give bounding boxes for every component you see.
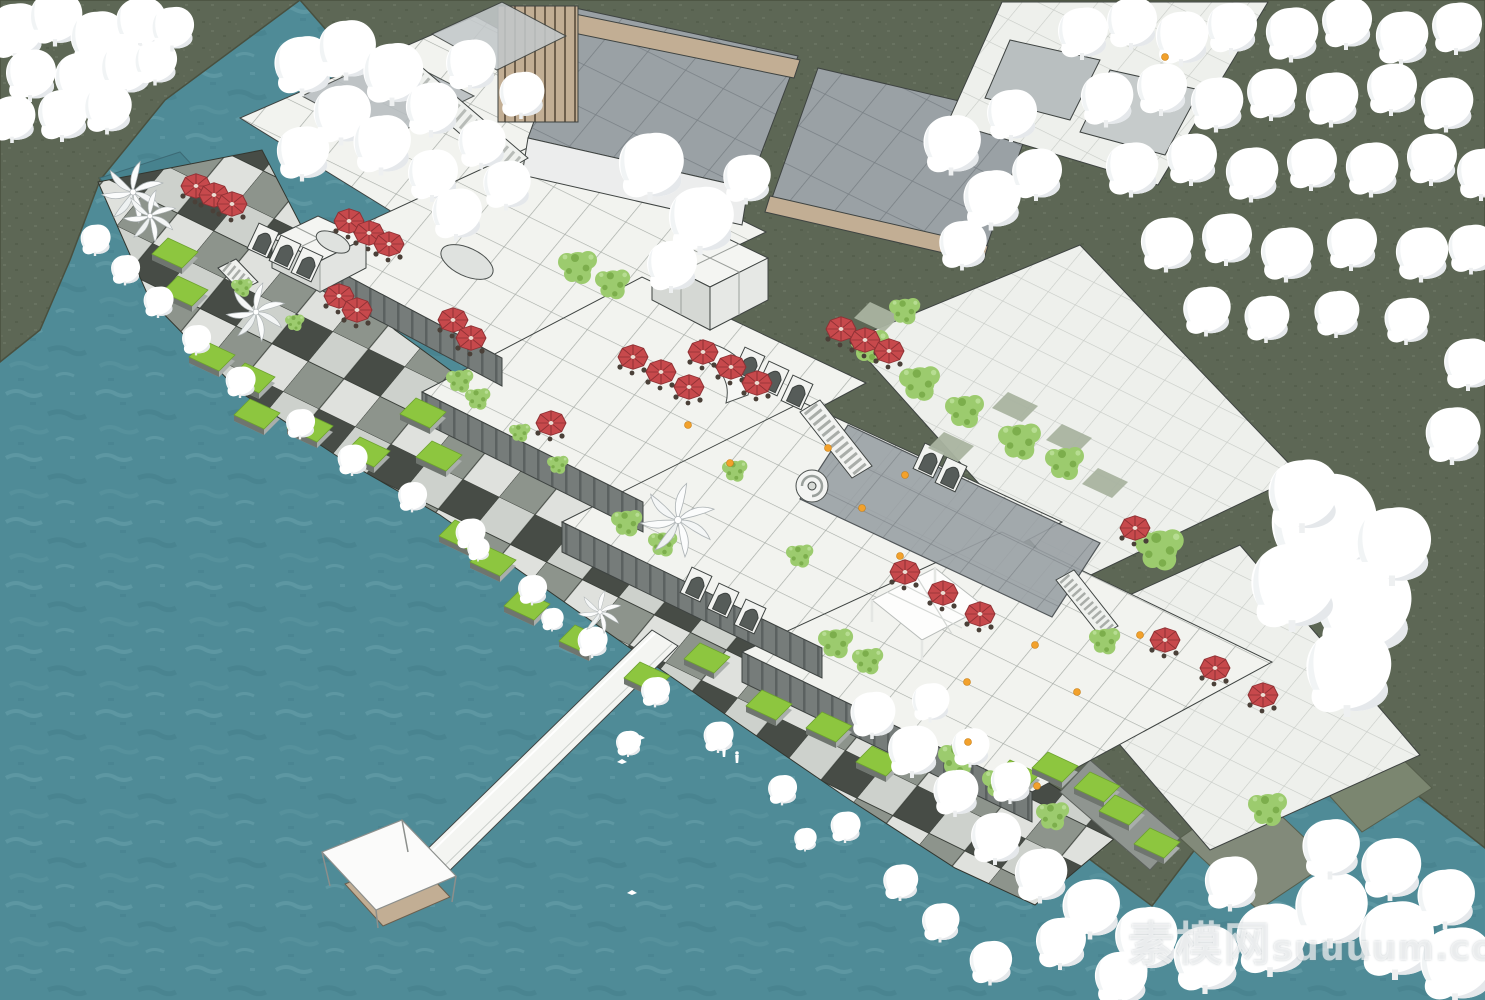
orange-lamp bbox=[902, 472, 909, 479]
white-model-tree bbox=[1058, 7, 1108, 60]
white-model-tree bbox=[794, 828, 816, 852]
white-model-tree bbox=[1183, 287, 1230, 337]
white-model-tree bbox=[111, 255, 140, 285]
white-model-tree bbox=[922, 903, 959, 942]
white-model-tree bbox=[144, 286, 174, 318]
white-model-tree bbox=[541, 608, 563, 632]
white-model-tree bbox=[226, 366, 256, 398]
rendering-canvas: 素模网suuuum.com bbox=[0, 0, 1485, 1000]
white-model-tree bbox=[1396, 227, 1448, 282]
white-model-tree bbox=[970, 941, 1012, 986]
orange-lamp bbox=[685, 422, 692, 429]
white-model-tree bbox=[1106, 142, 1158, 197]
white-model-tree bbox=[1141, 217, 1193, 272]
white-model-tree bbox=[616, 731, 641, 757]
white-model-tree bbox=[1306, 628, 1391, 717]
white-model-tree bbox=[1015, 848, 1067, 903]
orange-lamp bbox=[964, 679, 971, 686]
watermark-latin: suuuum.com bbox=[1272, 929, 1485, 969]
orange-lamp bbox=[825, 445, 832, 452]
white-model-tree bbox=[1376, 11, 1428, 66]
white-model-tree bbox=[883, 864, 918, 901]
white-model-tree bbox=[641, 677, 670, 707]
white-model-tree bbox=[1251, 543, 1336, 632]
white-model-tree bbox=[1202, 213, 1252, 266]
white-model-tree bbox=[1266, 7, 1318, 62]
orange-lamp bbox=[965, 739, 972, 746]
white-model-tree bbox=[1287, 138, 1337, 191]
white-model-tree bbox=[1247, 68, 1297, 121]
white-model-tree bbox=[1361, 838, 1421, 901]
white-model-tree bbox=[933, 770, 978, 817]
white-model-tree bbox=[446, 39, 496, 92]
white-model-tree bbox=[182, 325, 211, 355]
white-model-tree bbox=[1137, 63, 1187, 116]
white-model-tree bbox=[888, 725, 938, 778]
white-model-tree bbox=[483, 161, 530, 211]
spiral-stair bbox=[796, 470, 828, 502]
orange-lamp bbox=[1074, 689, 1081, 696]
white-model-tree bbox=[939, 221, 986, 271]
white-model-tree bbox=[1314, 291, 1359, 338]
white-model-tree bbox=[1207, 2, 1257, 55]
white-model-tree bbox=[923, 115, 980, 175]
orange-lamp bbox=[1137, 632, 1144, 639]
scene-svg bbox=[0, 0, 1485, 1000]
white-model-tree bbox=[723, 155, 770, 205]
orange-lamp bbox=[859, 505, 866, 512]
white-model-tree bbox=[1322, 0, 1372, 50]
white-model-tree bbox=[38, 89, 88, 142]
white-model-tree bbox=[1012, 148, 1062, 201]
watermark: 素模网suuuum.com bbox=[1128, 908, 1485, 974]
white-model-tree bbox=[432, 188, 482, 241]
white-model-tree bbox=[467, 538, 489, 562]
white-model-tree bbox=[353, 115, 410, 175]
white-model-tree bbox=[1261, 227, 1313, 282]
white-model-tree bbox=[458, 120, 505, 170]
white-model-tree bbox=[647, 240, 697, 293]
white-model-tree bbox=[398, 482, 427, 512]
white-model-tree bbox=[277, 126, 329, 181]
white-model-tree bbox=[1036, 917, 1086, 970]
white-model-tree bbox=[704, 721, 734, 753]
white-model-tree bbox=[912, 683, 949, 722]
white-model-tree bbox=[1167, 133, 1217, 186]
white-model-tree bbox=[619, 133, 684, 201]
white-model-tree bbox=[338, 444, 368, 476]
white-model-tree bbox=[1107, 0, 1157, 50]
person-figure bbox=[735, 751, 739, 763]
person-figure bbox=[722, 745, 726, 757]
white-model-tree bbox=[971, 812, 1021, 865]
orange-lamp bbox=[1032, 642, 1039, 649]
white-model-tree bbox=[1306, 72, 1358, 127]
white-model-tree bbox=[499, 72, 544, 119]
white-model-tree bbox=[768, 775, 797, 805]
white-model-tree bbox=[991, 762, 1031, 804]
white-model-tree bbox=[1205, 856, 1257, 911]
white-model-tree bbox=[1421, 77, 1473, 132]
white-model-tree bbox=[1327, 218, 1377, 271]
white-model-tree bbox=[1426, 407, 1481, 465]
orange-lamp bbox=[1162, 54, 1169, 61]
white-model-tree bbox=[81, 224, 111, 256]
white-model-tree bbox=[1302, 819, 1359, 879]
white-model-tree bbox=[1356, 507, 1431, 586]
watermark-chinese: 素模网 bbox=[1128, 908, 1272, 974]
white-model-tree bbox=[1081, 72, 1133, 127]
white-model-tree bbox=[952, 728, 989, 767]
white-model-tree bbox=[84, 85, 131, 135]
white-model-tree bbox=[1367, 63, 1417, 116]
white-model-tree bbox=[518, 575, 547, 605]
white-model-tree bbox=[286, 409, 315, 439]
white-model-tree bbox=[406, 82, 458, 137]
white-model-tree bbox=[1191, 77, 1243, 132]
white-model-tree bbox=[1269, 459, 1339, 533]
white-model-tree bbox=[1226, 147, 1278, 202]
white-model-tree bbox=[1444, 338, 1485, 391]
white-model-tree bbox=[987, 89, 1037, 142]
white-model-tree bbox=[1407, 133, 1457, 186]
white-model-tree bbox=[1384, 298, 1429, 345]
white-model-tree bbox=[1432, 2, 1482, 55]
white-model-tree bbox=[1244, 296, 1289, 343]
orange-lamp bbox=[897, 553, 904, 560]
orange-lamp bbox=[727, 460, 734, 467]
white-model-tree bbox=[850, 692, 895, 739]
white-model-tree bbox=[831, 811, 861, 843]
orange-lamp bbox=[1034, 783, 1041, 790]
white-model-tree bbox=[152, 7, 194, 52]
white-model-tree bbox=[1346, 142, 1398, 197]
